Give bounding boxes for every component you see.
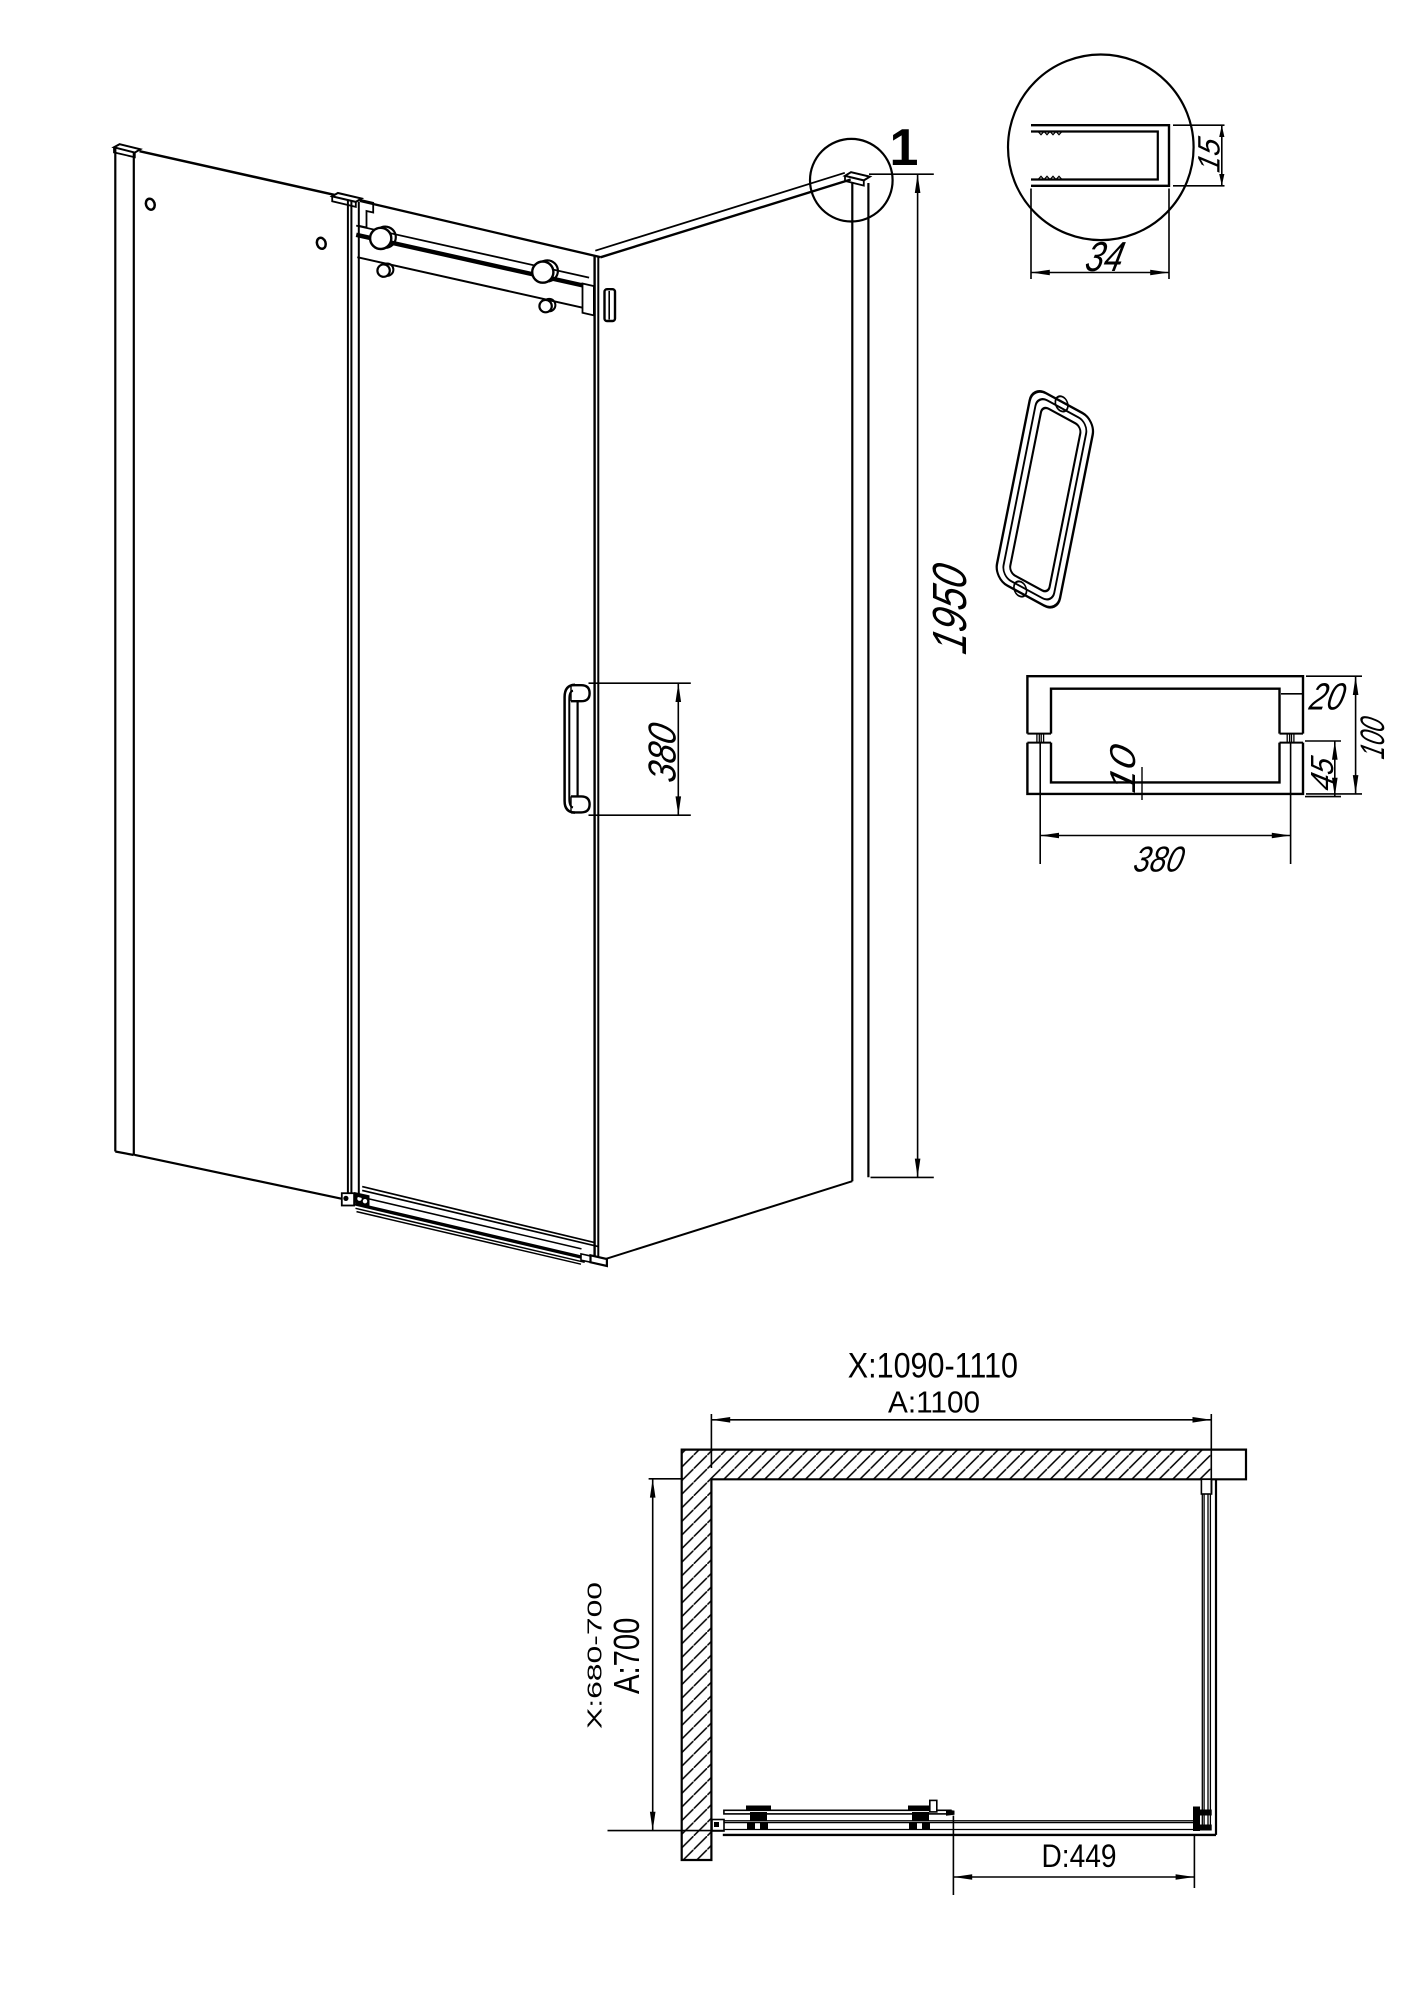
svg-text:380: 380 — [641, 719, 684, 786]
svg-text:1: 1 — [890, 119, 919, 177]
svg-text:X:680-700: X:680-700 — [585, 1582, 607, 1729]
svg-text:X:1090-1110: X:1090-1110 — [848, 1347, 1018, 1386]
svg-text:D:449: D:449 — [1042, 1838, 1117, 1874]
svg-text:A:700: A:700 — [606, 1618, 647, 1695]
svg-text:10: 10 — [1102, 740, 1142, 795]
svg-text:380: 380 — [1130, 839, 1188, 879]
svg-text:A:1100: A:1100 — [888, 1385, 980, 1420]
svg-text:1950: 1950 — [924, 559, 977, 658]
